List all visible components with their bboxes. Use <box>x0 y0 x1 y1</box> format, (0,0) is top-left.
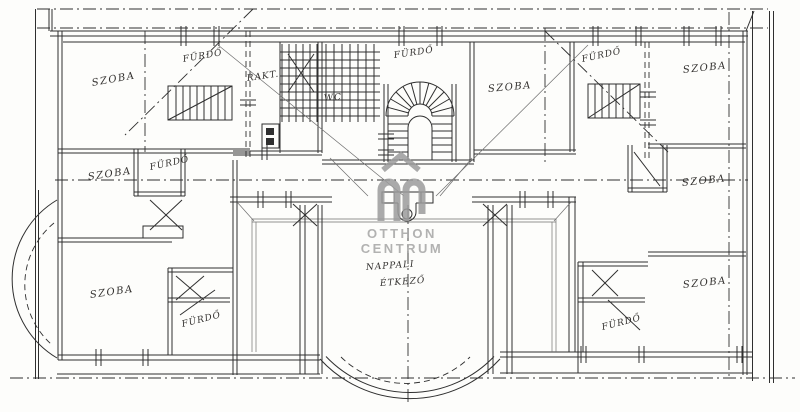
bath-fixtures <box>168 84 640 120</box>
exterior-walls <box>50 31 753 375</box>
staircase <box>386 82 454 160</box>
floorplan-drawing <box>0 0 800 412</box>
chimney <box>382 192 433 221</box>
room-label-wc: WC <box>324 92 343 104</box>
outer-frame <box>10 9 795 383</box>
roof-lines <box>125 9 729 402</box>
panel-box <box>262 124 279 148</box>
tile-grid <box>280 44 380 122</box>
interior-walls <box>58 31 746 375</box>
floorplan-page: SZOBA FÜRDŐ RAKT. WC FÜRDŐ SZOBA FÜRDŐ S… <box>0 0 800 412</box>
